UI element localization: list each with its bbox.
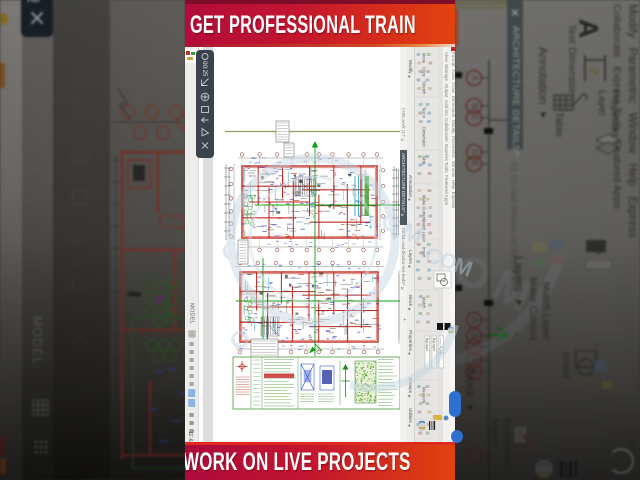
svg-text:O: O bbox=[378, 208, 403, 239]
svg-text:O: O bbox=[225, 324, 257, 357]
svg-text:M: M bbox=[398, 218, 427, 251]
svg-text:C: C bbox=[219, 237, 244, 268]
